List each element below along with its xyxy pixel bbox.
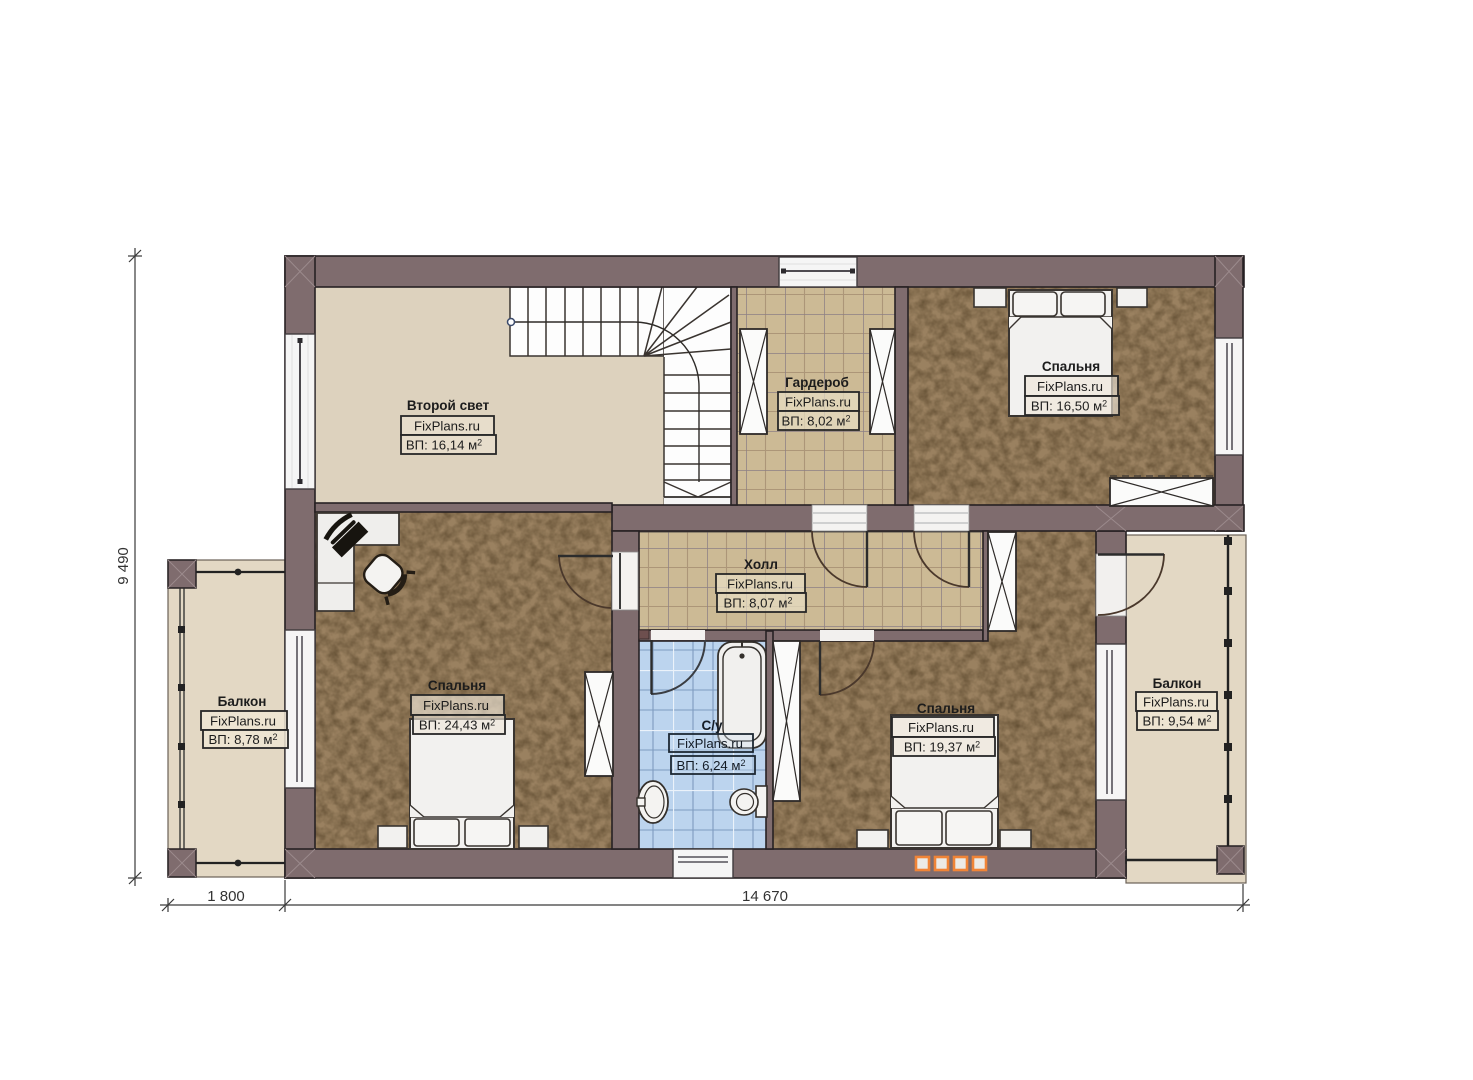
svg-text:ВП: 24,43 м2: ВП: 24,43 м2 <box>419 718 495 733</box>
svg-text:ВП: 19,37 м2: ВП: 19,37 м2 <box>904 740 980 755</box>
svg-text:FixPlans.ru: FixPlans.ru <box>1037 379 1103 394</box>
svg-text:Гардероб: Гардероб <box>785 375 849 390</box>
svg-text:Второй свет: Второй свет <box>407 398 490 413</box>
svg-text:FixPlans.ru: FixPlans.ru <box>785 395 851 410</box>
svg-text:FixPlans.ru: FixPlans.ru <box>1143 695 1209 710</box>
svg-text:FixPlans.ru: FixPlans.ru <box>210 714 276 729</box>
svg-text:Балкон: Балкон <box>1153 676 1202 691</box>
svg-text:FixPlans.ru: FixPlans.ru <box>908 720 974 735</box>
svg-text:ВП: 6,24 м2: ВП: 6,24 м2 <box>676 758 745 773</box>
svg-text:14 670: 14 670 <box>742 888 788 905</box>
svg-text:Спальня: Спальня <box>428 678 486 693</box>
svg-text:ВП: 16,50 м2: ВП: 16,50 м2 <box>1031 399 1107 414</box>
svg-text:С/у: С/у <box>701 718 723 733</box>
svg-text:ВП: 8,02 м2: ВП: 8,02 м2 <box>781 414 850 429</box>
svg-text:Холл: Холл <box>744 557 778 572</box>
svg-text:Балкон: Балкон <box>218 694 267 709</box>
svg-text:Спальня: Спальня <box>1042 359 1100 374</box>
svg-text:Спальня: Спальня <box>917 701 975 716</box>
svg-text:9 490: 9 490 <box>115 547 132 585</box>
svg-text:FixPlans.ru: FixPlans.ru <box>727 577 793 592</box>
svg-text:FixPlans.ru: FixPlans.ru <box>677 736 743 751</box>
svg-text:ВП: 8,07 м2: ВП: 8,07 м2 <box>723 596 792 611</box>
svg-text:FixPlans.ru: FixPlans.ru <box>414 419 480 434</box>
svg-text:ВП: 8,78 м2: ВП: 8,78 м2 <box>208 732 277 747</box>
svg-text:ВП: 16,14 м2: ВП: 16,14 м2 <box>406 438 482 453</box>
svg-text:ВП: 9,54 м2: ВП: 9,54 м2 <box>1142 714 1211 729</box>
svg-text:1 800: 1 800 <box>207 888 245 905</box>
svg-text:FixPlans.ru: FixPlans.ru <box>423 698 489 713</box>
